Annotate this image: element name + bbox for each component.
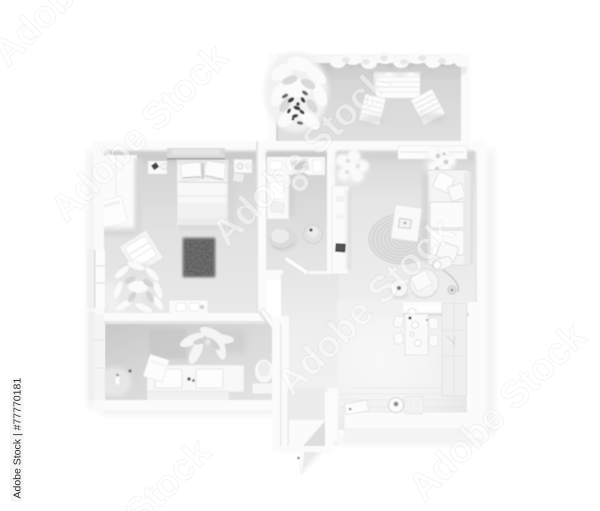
- svg-text:Adobe Stock | #77770181: Adobe Stock | #77770181: [12, 378, 24, 499]
